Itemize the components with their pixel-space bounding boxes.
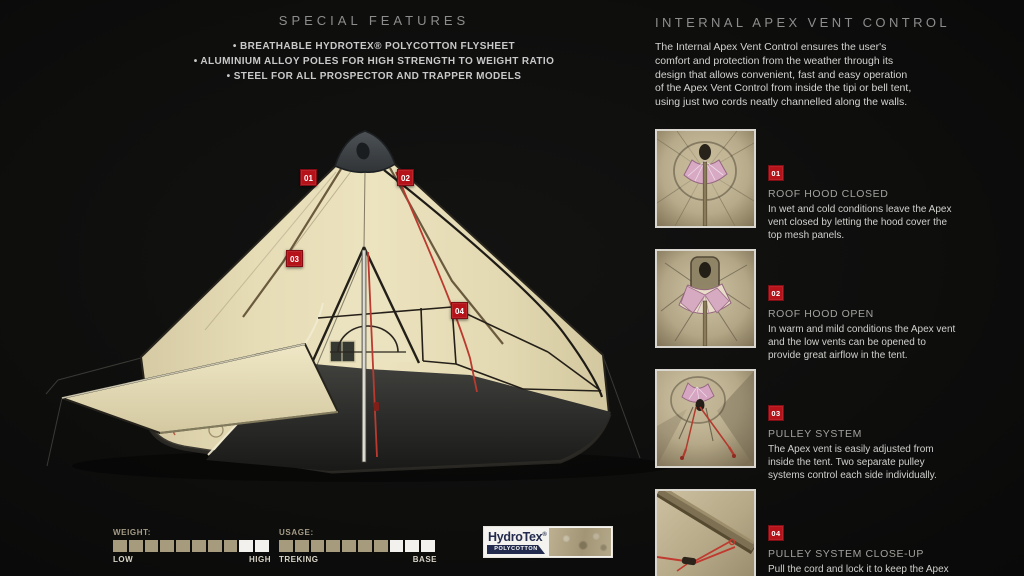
scale-square xyxy=(358,540,372,552)
hydrotex-brand-name: HydroTex® xyxy=(485,528,549,544)
roof-hood-closed-photo xyxy=(657,131,754,226)
usage-scale: USAGE: TREKING BASE xyxy=(279,528,437,564)
scale-square xyxy=(311,540,325,552)
special-features-title: SPECIAL FEATURES xyxy=(174,13,574,28)
step-title: PULLEY SYSTEM CLOSE-UP xyxy=(768,548,958,560)
usage-scale-squares xyxy=(279,540,437,552)
scale-square xyxy=(145,540,159,552)
scale-square xyxy=(295,540,309,552)
scale-square xyxy=(176,540,190,552)
feature-bullet: • BREATHABLE HYDROTEX® POLYCOTTON FLYSHE… xyxy=(174,39,574,54)
scale-square xyxy=(208,540,222,552)
step-description: The Apex vent is easily adjusted from in… xyxy=(768,443,958,482)
feature-bullet: • STEEL FOR ALL PROSPECTOR AND TRAPPER M… xyxy=(174,69,574,84)
apex-step-pulley-system: 03 PULLEY SYSTEM The Apex vent is easily… xyxy=(655,369,1024,482)
step-description: Pull the cord and lock it to keep the Ap… xyxy=(768,563,958,576)
apex-vent-section-header: INTERNAL APEX VENT CONTROL xyxy=(655,15,1015,30)
apex-vent-title: INTERNAL APEX VENT CONTROL xyxy=(655,15,1015,30)
hydrotex-logo: HydroTex® POLYCOTTON xyxy=(483,526,613,558)
thumbnail-pulley-closeup xyxy=(655,489,756,576)
usage-scale-label: USAGE: xyxy=(279,528,437,537)
hydrotex-logo-text: HydroTex® POLYCOTTON xyxy=(485,528,549,556)
apex-step-text-block: 01 ROOF HOOD CLOSED In wet and cold cond… xyxy=(768,129,958,242)
special-features-list: • BREATHABLE HYDROTEX® POLYCOTTON FLYSHE… xyxy=(174,39,574,84)
weight-low-label: LOW xyxy=(113,555,133,564)
apex-vent-steps: 01 ROOF HOOD CLOSED In wet and cold cond… xyxy=(655,129,1024,576)
scale-square xyxy=(239,540,253,552)
step-title: PULLEY SYSTEM xyxy=(768,428,958,440)
usage-treking-label: TREKING xyxy=(279,555,319,564)
weight-scale-squares xyxy=(113,540,271,552)
scale-square xyxy=(374,540,388,552)
step-number-badge: 01 xyxy=(768,165,784,181)
apex-step-pulley-closeup: 04 PULLEY SYSTEM CLOSE-UP Pull the cord … xyxy=(655,489,1024,576)
apex-step-text-block: 03 PULLEY SYSTEM The Apex vent is easily… xyxy=(768,369,958,482)
diagram-marker-02: 02 xyxy=(397,169,414,186)
diagram-marker-01: 01 xyxy=(300,169,317,186)
step-description: In warm and mild conditions the Apex ven… xyxy=(768,323,958,362)
scale-square xyxy=(405,540,419,552)
scale-square xyxy=(113,540,127,552)
special-features-section: SPECIAL FEATURES • BREATHABLE HYDROTEX® … xyxy=(174,13,574,84)
apex-cap xyxy=(335,131,395,172)
registered-mark: ® xyxy=(542,532,546,538)
apex-step-text-block: 02 ROOF HOOD OPEN In warm and mild condi… xyxy=(768,249,958,362)
step-number-badge: 04 xyxy=(768,525,784,541)
weight-scale: WEIGHT: LOW HIGH xyxy=(113,528,271,564)
diagram-marker-04: 04 xyxy=(451,302,468,319)
scale-square xyxy=(421,540,435,552)
scale-square xyxy=(192,540,206,552)
weight-high-label: HIGH xyxy=(249,555,271,564)
usage-base-label: BASE xyxy=(413,555,437,564)
apex-step-text-block: 04 PULLEY SYSTEM CLOSE-UP Pull the cord … xyxy=(768,489,958,576)
pulley-system-photo xyxy=(657,371,754,466)
thumbnail-pulley-system xyxy=(655,369,756,468)
scale-square xyxy=(342,540,356,552)
fabric-texture-image xyxy=(549,528,611,556)
scale-square xyxy=(390,540,404,552)
apex-vent-intro: The Internal Apex Vent Control ensures t… xyxy=(655,41,917,110)
thumbnail-roof-hood-closed xyxy=(655,129,756,228)
apex-step-roof-hood-closed: 01 ROOF HOOD CLOSED In wet and cold cond… xyxy=(655,129,1024,242)
step-title: ROOF HOOD OPEN xyxy=(768,308,958,320)
cord-lock xyxy=(374,402,379,411)
pulley-closeup-photo xyxy=(657,491,754,576)
thumbnail-roof-hood-open xyxy=(655,249,756,348)
apex-step-roof-hood-open: 02 ROOF HOOD OPEN In warm and mild condi… xyxy=(655,249,1024,362)
roof-hood-open-photo xyxy=(657,251,754,346)
step-title: ROOF HOOD CLOSED xyxy=(768,188,958,200)
scale-square xyxy=(279,540,293,552)
polycotton-banner: POLYCOTTON xyxy=(487,545,545,554)
scale-square xyxy=(160,540,174,552)
diagram-marker-03: 03 xyxy=(286,250,303,267)
scale-square xyxy=(255,540,269,552)
brochure-page: 01 02 03 04 SPECIAL FEATURES • BREATHABL… xyxy=(0,0,1024,576)
center-pole xyxy=(362,250,366,462)
weight-scale-label: WEIGHT: xyxy=(113,528,271,537)
scale-square xyxy=(224,540,238,552)
step-description: In wet and cold conditions leave the Ape… xyxy=(768,203,958,242)
scale-square xyxy=(326,540,340,552)
feature-bullet: • ALUMINIUM ALLOY POLES FOR HIGH STRENGT… xyxy=(174,54,574,69)
step-number-badge: 03 xyxy=(768,405,784,421)
step-number-badge: 02 xyxy=(768,285,784,301)
scale-square xyxy=(129,540,143,552)
